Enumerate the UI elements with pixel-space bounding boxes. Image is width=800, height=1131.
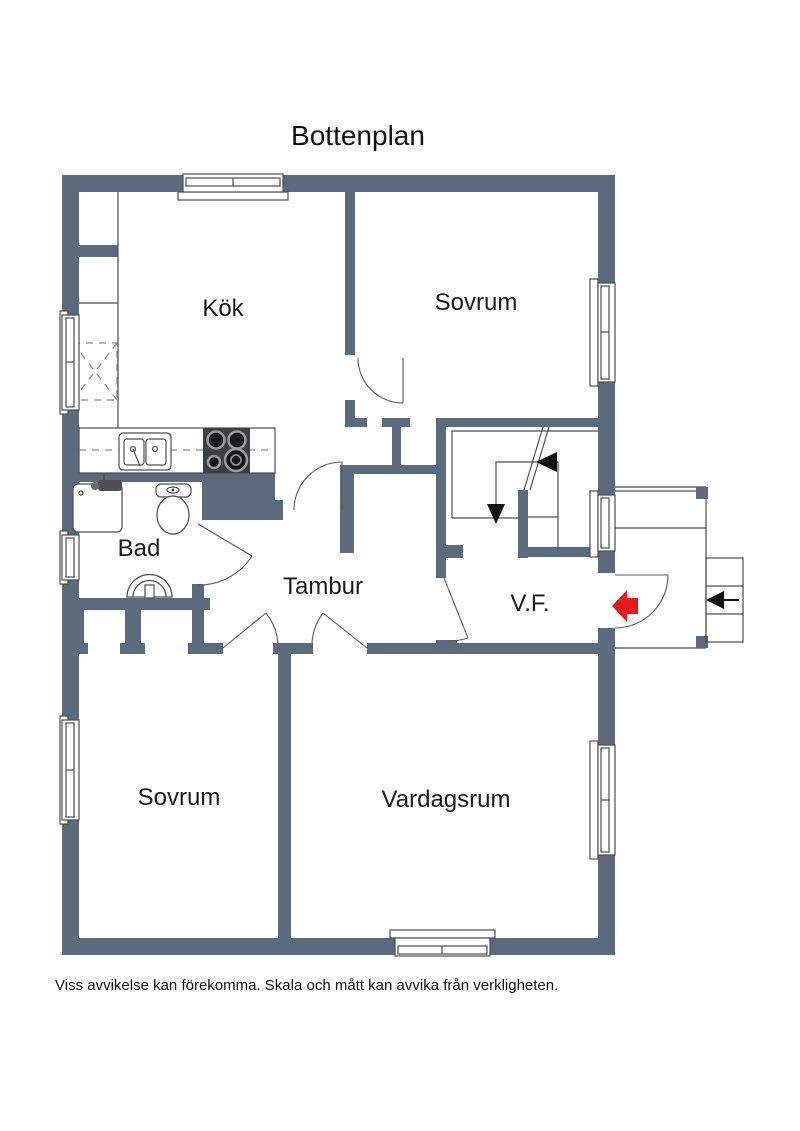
closet-tee-leg bbox=[392, 427, 401, 467]
stair-mid-stub bbox=[518, 490, 528, 558]
door-bad bbox=[198, 524, 252, 585]
closet-bottom-wall bbox=[340, 465, 443, 474]
stairs-diagonal-a bbox=[524, 427, 543, 490]
pantry-stub bbox=[62, 245, 118, 257]
window-left-kok bbox=[60, 311, 79, 414]
wall-niche-a bbox=[62, 643, 88, 654]
niche-stub-a bbox=[70, 610, 84, 643]
toilet-icon bbox=[156, 484, 191, 534]
wall-vf-vardagsrum bbox=[367, 643, 598, 654]
room-label-sovrum-top: Sovrum bbox=[435, 289, 518, 317]
room-label-tambur: Tambur bbox=[283, 573, 363, 601]
shower-icon bbox=[73, 474, 122, 532]
steps-left-arrow-icon bbox=[706, 591, 739, 609]
niche-stub-b bbox=[125, 610, 141, 643]
window-left-bad bbox=[60, 531, 79, 584]
wall-stairs-top bbox=[436, 418, 598, 427]
closet-tee-top bbox=[382, 418, 410, 427]
wall-stairs-vf bbox=[528, 547, 598, 557]
wall-kok-bad bbox=[62, 473, 202, 482]
room-label-sovrum-bottom: Sovrum bbox=[138, 784, 221, 812]
kitchen bbox=[73, 192, 275, 473]
door-vf bbox=[444, 578, 468, 641]
wall-tambur-west bbox=[192, 610, 204, 643]
window-bottom-vardagsrum bbox=[390, 930, 495, 956]
outer-wall-bottom bbox=[62, 938, 615, 955]
wall-kok-sovrum bbox=[345, 192, 355, 355]
wall-tambur-left bbox=[188, 643, 223, 654]
wall-block bbox=[202, 473, 275, 520]
wall-stub bbox=[345, 400, 355, 418]
closet-stub-left bbox=[345, 418, 367, 427]
kitchen-sink-icon bbox=[119, 433, 171, 470]
room-label-vf: V.F. bbox=[510, 590, 549, 618]
porch bbox=[612, 487, 743, 648]
windows bbox=[60, 174, 615, 956]
window-top-kok bbox=[178, 174, 288, 200]
wall-nub bbox=[446, 545, 463, 558]
room-label-bad: Bad bbox=[118, 535, 161, 563]
room-label-kok: Kök bbox=[202, 295, 243, 323]
stove-icon bbox=[203, 428, 250, 473]
stairs-left-arrow-icon bbox=[536, 452, 557, 472]
wall-sovrum-vardagsrum bbox=[278, 654, 291, 938]
door-kok bbox=[294, 462, 342, 510]
wall-block-ext bbox=[275, 500, 283, 520]
window-right-sovrum bbox=[590, 279, 615, 386]
stairs-down-arrow-icon bbox=[487, 504, 505, 524]
disclaimer-text: Viss avvikelse kan förekomma. Skala och … bbox=[55, 977, 558, 994]
wall-stairs-left bbox=[436, 427, 446, 578]
wall-tambur-mid bbox=[273, 643, 313, 654]
window-right-vardagsrum bbox=[590, 741, 615, 859]
interior-walls bbox=[62, 192, 598, 938]
floorplan-page: Bottenplan bbox=[0, 0, 800, 1131]
room-label-vardagsrum: Vardagsrum bbox=[382, 786, 511, 814]
wall-niche-b bbox=[120, 643, 145, 654]
door-vardagsrum bbox=[312, 613, 367, 648]
washbasin-icon bbox=[127, 575, 172, 598]
outer-wall-top bbox=[62, 175, 615, 192]
floorplan-svg bbox=[0, 0, 800, 1131]
wall-bad-bottom bbox=[62, 598, 210, 610]
door-sovrum-top bbox=[358, 358, 403, 403]
door-sovrum-bottom bbox=[223, 613, 278, 648]
window-left-sovrum bbox=[60, 716, 79, 824]
entrance-opening bbox=[597, 573, 616, 628]
window-right-stairs bbox=[590, 491, 615, 557]
outer-walls bbox=[62, 175, 616, 955]
porch-post-top bbox=[696, 487, 708, 499]
